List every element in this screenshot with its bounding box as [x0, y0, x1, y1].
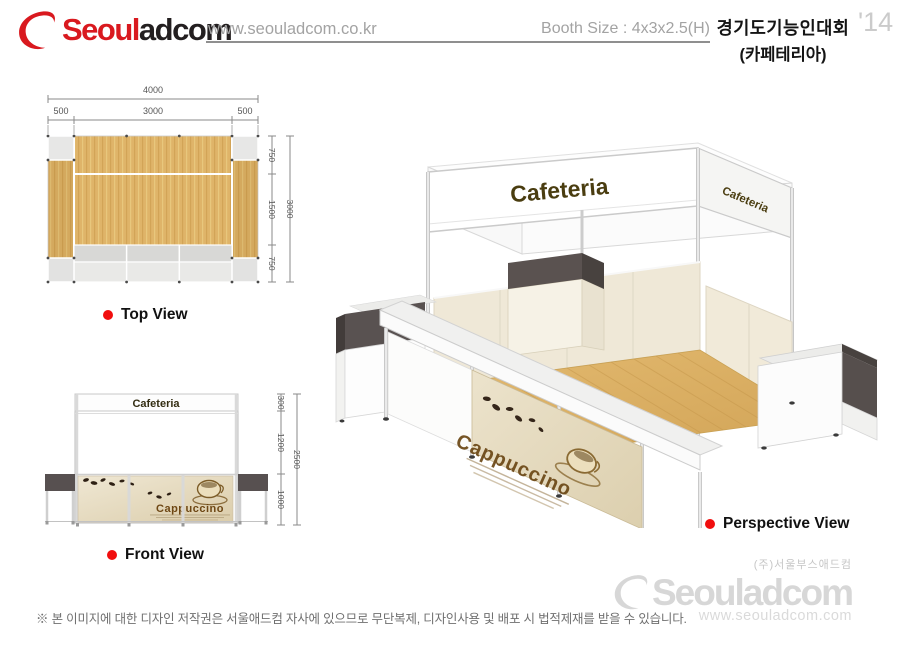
roof-frame: Cafeteria Cafeteria	[428, 143, 792, 254]
top-view-label: Top View	[103, 306, 188, 324]
perspective-view-drawing: Cafeteria Cafeteria	[330, 118, 895, 528]
front-view-drawing: Cafeteria	[38, 390, 308, 540]
dim-3000-depth: 3000	[285, 200, 295, 219]
dim-750-bottom: 750	[267, 256, 277, 270]
red-bullet-icon	[107, 550, 117, 560]
plan-counter-front-row	[74, 262, 232, 282]
cappuccino-text: Cappuccino	[156, 503, 224, 515]
seouladcom-logo: Seouladcom	[16, 9, 231, 51]
logo-seoul: Seoul	[62, 12, 139, 47]
dim-500-left: 500	[53, 106, 68, 116]
copyright-disclaimer: ※ 본 이미지에 대한 디자인 저작권은 서울애드컴 자사에 있으므로 무단복제…	[36, 608, 687, 627]
top-view-plan	[47, 135, 260, 284]
dim-750-top: 750	[267, 148, 277, 162]
back-counter	[508, 253, 604, 356]
event-subtitle: (카페테리아)	[708, 41, 858, 65]
plan-counter-row	[74, 245, 232, 262]
dim-3000: 3000	[143, 106, 163, 116]
plan-corner-block	[232, 136, 258, 160]
header-website: www.seouladcom.co.kr	[208, 20, 377, 39]
dim-4000: 4000	[143, 85, 163, 95]
dim-1200: 1200	[276, 433, 286, 452]
plan-corner-block	[232, 258, 258, 282]
event-title-block: 경기도기능인대회 (카페테리아)	[708, 15, 858, 65]
design-sheet: Seouladcom www.seouladcom.co.kr Booth Si…	[0, 0, 900, 651]
plan-corner-block	[48, 258, 74, 282]
front-view-label: Front View	[107, 546, 204, 564]
dim-2500: 2500	[292, 450, 302, 469]
booth-size-label: Booth Size : 4x3x2.5(H)	[520, 20, 710, 38]
left-wing-panel	[45, 474, 75, 491]
front-view-height-dimensions: 300 1200 1000 2500	[276, 394, 302, 525]
watermark-swoosh-icon	[612, 573, 650, 611]
right-counter	[758, 344, 877, 450]
red-bullet-icon	[705, 519, 715, 529]
dim-500-right: 500	[237, 106, 252, 116]
company-name: (주)서울부스애드컴	[604, 556, 852, 572]
year-mark: '14	[858, 7, 893, 38]
right-wing-panel	[238, 474, 268, 491]
top-view-depth-dimensions: 750 1500 750 3000	[267, 136, 295, 282]
plan-corner-block	[48, 136, 74, 160]
dim-1500: 1500	[267, 200, 277, 219]
watermark-brand: Seouladcom	[652, 574, 852, 611]
front-counter-graphic: Cappuccino	[78, 476, 233, 522]
top-view-drawing: 4000 500 3000 500	[38, 82, 308, 300]
red-bullet-icon	[103, 310, 113, 320]
seouladcom-swoosh-icon	[16, 9, 58, 51]
top-view-width-dimensions: 4000 500 3000 500	[48, 85, 258, 134]
event-title: 경기도기능인대회	[708, 15, 858, 40]
dim-1000: 1000	[276, 490, 286, 509]
header-divider	[206, 41, 710, 43]
front-view-structure: Cafeteria	[45, 394, 268, 527]
front-fascia-text: Cafeteria	[132, 398, 180, 410]
dim-300: 300	[276, 395, 286, 409]
perspective-view-label: Perspective View	[705, 515, 849, 533]
